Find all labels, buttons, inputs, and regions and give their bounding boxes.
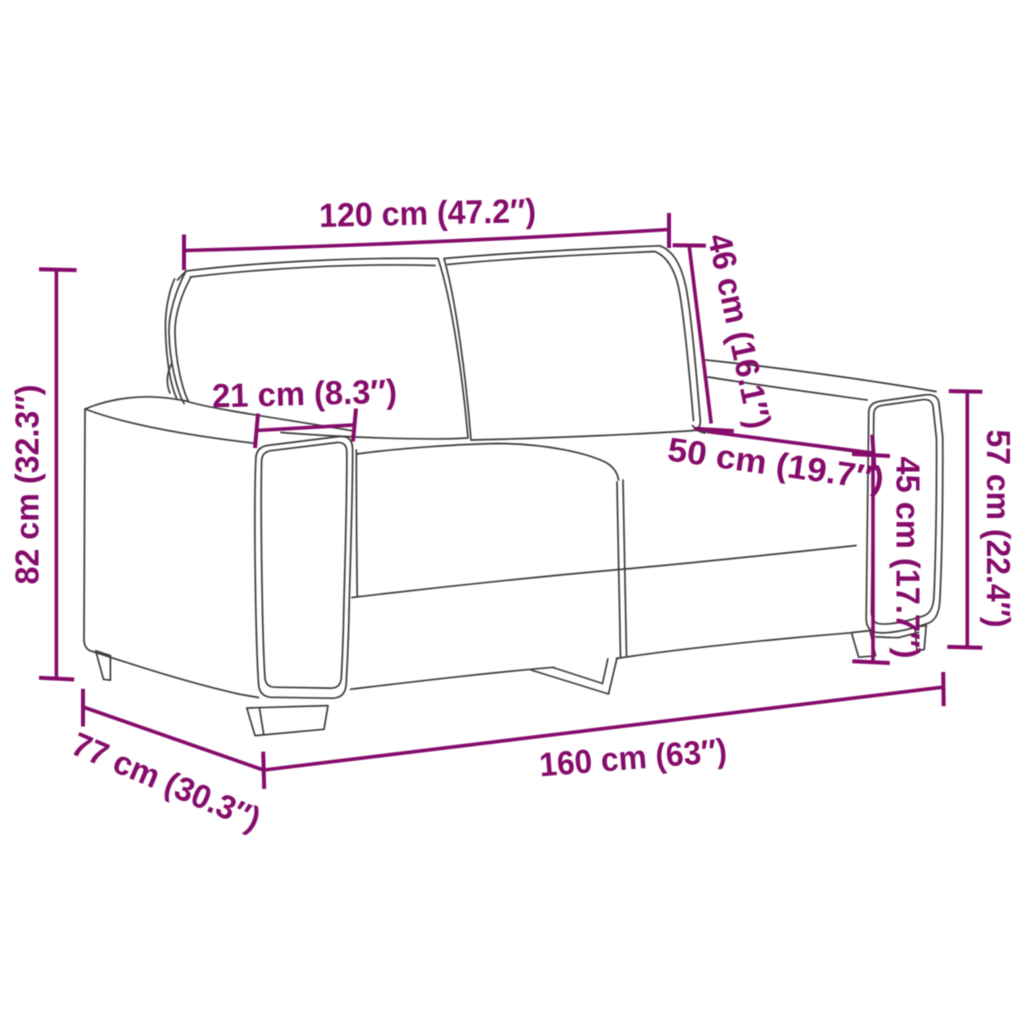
svg-text:45 cm (17.7″): 45 cm (17.7″) — [889, 457, 926, 659]
svg-text:21 cm (8.3″): 21 cm (8.3″) — [212, 374, 398, 416]
svg-text:57 cm (22.4″): 57 cm (22.4″) — [979, 430, 1016, 628]
svg-text:120 cm (47.2″): 120 cm (47.2″) — [319, 193, 537, 235]
svg-text:82 cm (32.3″): 82 cm (32.3″) — [10, 385, 47, 585]
